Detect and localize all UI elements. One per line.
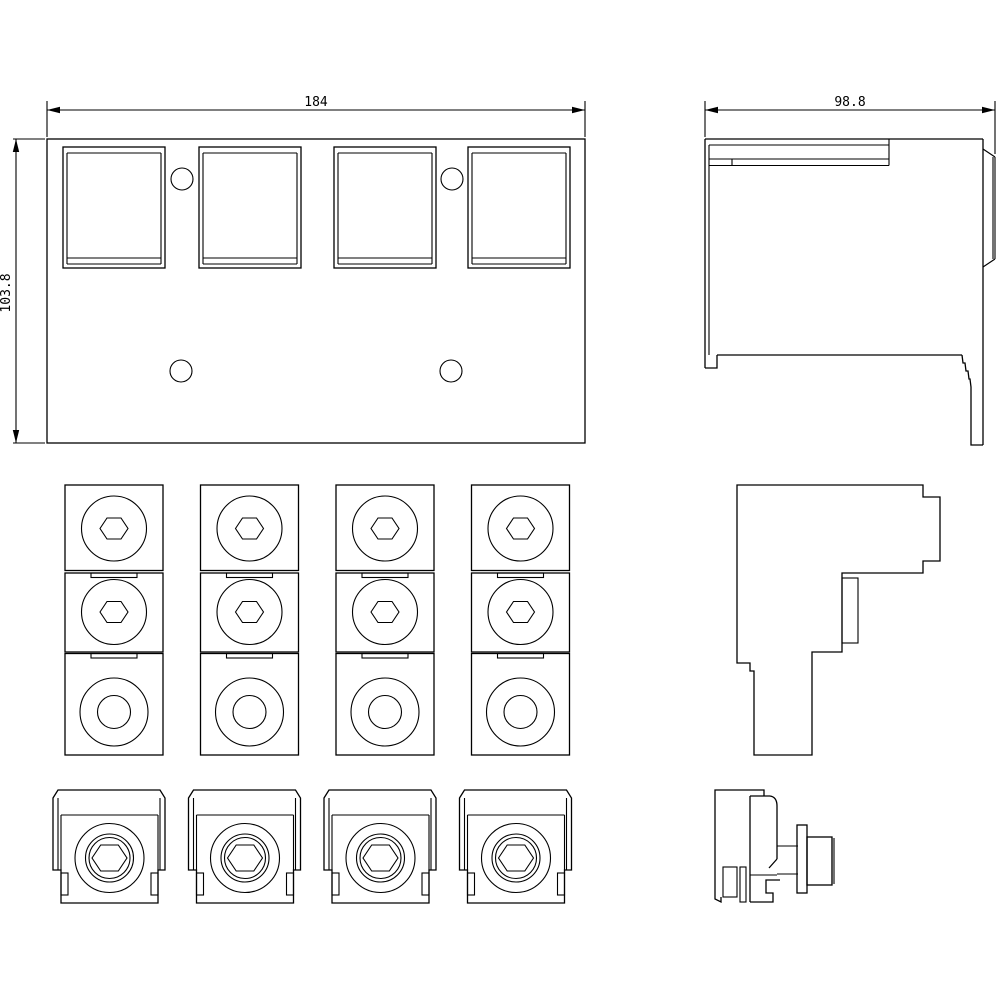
- dim-arrow-top: [13, 139, 19, 152]
- dim-arrow-bottom: [13, 430, 19, 443]
- terminal-column-1: [65, 485, 163, 755]
- dimension-drawing: 184 103.8: [0, 0, 1000, 1000]
- front-view: [47, 139, 585, 443]
- screw-flange: [797, 825, 807, 893]
- front-view-body: [47, 139, 585, 443]
- clamp-lugs: [53, 790, 572, 903]
- clamp-lug-4: [460, 790, 572, 903]
- side-view-leg: [962, 355, 983, 445]
- dim-arrow-right: [572, 107, 585, 113]
- terminal-side-tab: [842, 578, 858, 643]
- terminal-column-2: [201, 485, 299, 755]
- screw-head: [807, 837, 832, 885]
- technical-drawing-page: 184 103.8: [0, 0, 1000, 1000]
- front-width-label: 184: [304, 95, 328, 110]
- front-hole-bottom-right: [440, 360, 462, 382]
- front-window-4: [468, 147, 570, 268]
- side-depth-label: 98.8: [834, 95, 865, 110]
- dim-front-height: 103.8: [0, 139, 45, 443]
- terminal-side-profile: [737, 485, 940, 755]
- front-height-label: 103.8: [0, 273, 14, 312]
- side-view: [705, 139, 995, 445]
- front-hole-top-left: [171, 168, 193, 190]
- front-hole-bottom-left: [170, 360, 192, 382]
- dim-arrow-right: [982, 107, 995, 113]
- terminal-block-columns: [65, 485, 570, 755]
- front-hole-top-right: [441, 168, 463, 190]
- front-window-1: [63, 147, 165, 268]
- clamp-lug-2: [189, 790, 301, 903]
- terminal-column-4: [472, 485, 570, 755]
- side-view-rear-tab: [983, 149, 995, 267]
- clamp-lug-side-view: [715, 790, 834, 902]
- dim-arrow-left: [47, 107, 60, 113]
- front-window-2: [199, 147, 301, 268]
- terminal-column-3: [336, 485, 434, 755]
- front-window-3: [334, 147, 436, 268]
- clamp-lug-3: [324, 790, 436, 903]
- dim-arrow-left: [705, 107, 718, 113]
- dim-front-width: 184: [47, 95, 585, 137]
- clamp-lug-1: [53, 790, 165, 903]
